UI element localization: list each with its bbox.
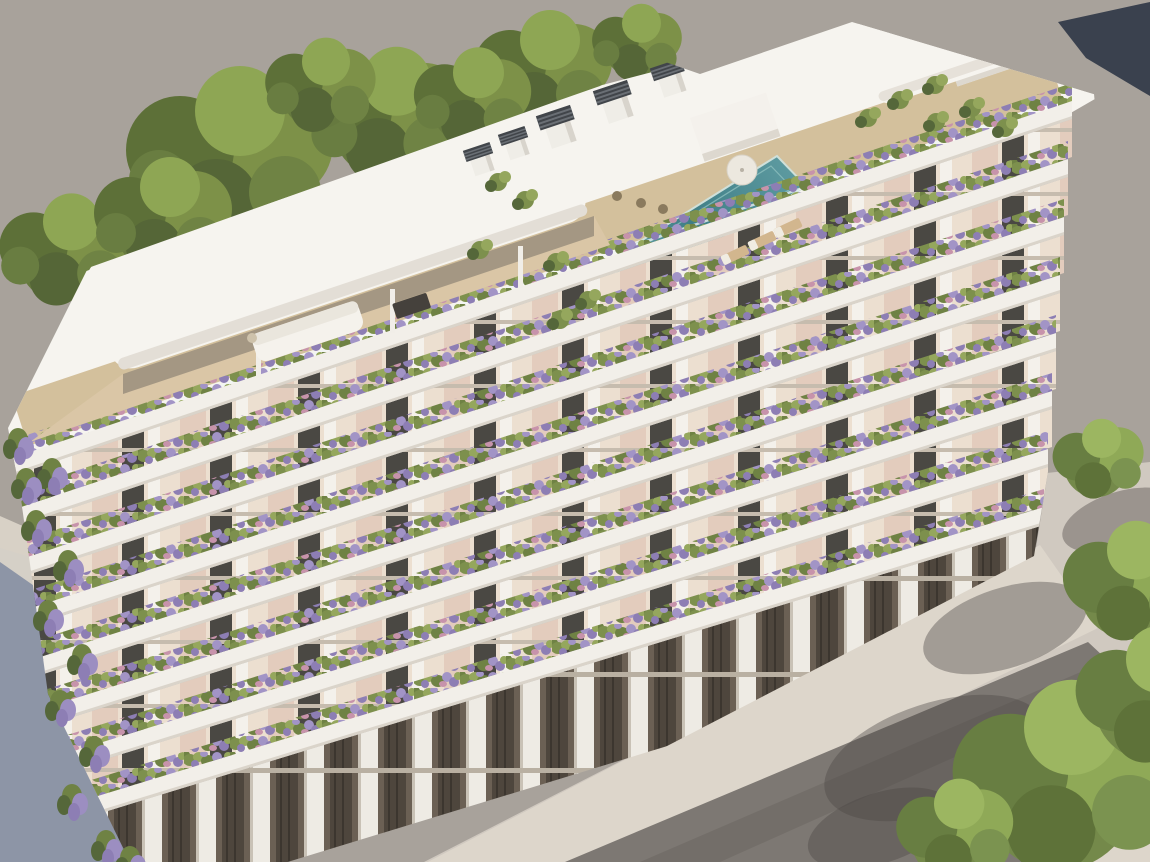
render-viewport [0, 0, 1150, 862]
deck-stool [658, 204, 668, 214]
floor-lantern [247, 333, 257, 343]
architectural-render [0, 0, 1150, 862]
deck-stool [636, 198, 646, 208]
umbrella [727, 155, 757, 185]
column [390, 289, 395, 333]
column [518, 246, 523, 288]
deck-stool [612, 191, 622, 201]
